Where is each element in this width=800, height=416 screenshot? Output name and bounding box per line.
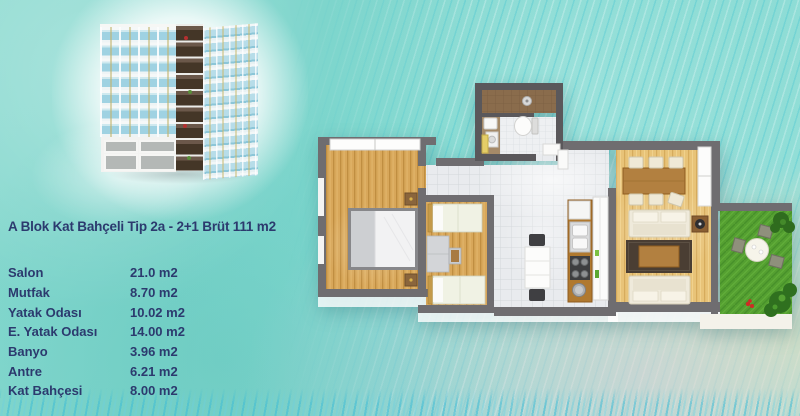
single-bed-1 — [428, 204, 482, 232]
room-area: 3.96 m2 — [130, 344, 178, 359]
balcony-plant-green2 — [187, 156, 191, 160]
master-side-window2 — [318, 236, 324, 264]
bathroom-cabinet-yellow — [482, 135, 488, 153]
room-label: Banyo — [8, 344, 130, 359]
hall-chair2 — [529, 289, 545, 301]
page: A Blok Kat Bahçeli Tip 2a - 2+1 Brüt 111… — [0, 0, 800, 416]
room-label: Antre — [8, 364, 130, 379]
room-area: 8.00 m2 — [130, 383, 178, 398]
balcony-flower-red2 — [183, 124, 187, 128]
room-label: Mutfak — [8, 285, 130, 300]
floorplan-svg — [312, 80, 800, 342]
room-area: 8.70 m2 — [130, 285, 178, 300]
master-side-window — [318, 178, 324, 216]
room-bathroom — [482, 90, 560, 161]
room-row-mutfak: Mutfak8.70 m2 — [8, 283, 258, 303]
garden-table — [746, 239, 769, 262]
storefront-window — [139, 140, 176, 153]
room-label: Salon — [8, 265, 130, 280]
building-ground-floor — [101, 137, 176, 172]
room-row-e-yatak-odasi: E. Yatak Odası14.00 m2 — [8, 322, 258, 342]
building-render — [100, 24, 258, 174]
room-row-kat-bahcesi: Kat Bahçesi8.00 m2 — [8, 381, 258, 401]
room-row-banyo: Banyo3.96 m2 — [8, 342, 258, 362]
bathroom-sink — [484, 118, 497, 129]
room-area-table: Salon21.0 m2 Mutfak8.70 m2 Yatak Odası10… — [8, 263, 258, 401]
storefront-window — [104, 154, 138, 171]
balcony-plant-green — [188, 90, 192, 94]
kitchen-cupboard — [569, 201, 590, 219]
room-kitchen — [568, 197, 608, 302]
building-front-facade — [100, 27, 176, 137]
sofa-bottom — [629, 276, 690, 304]
toilet-bowl — [515, 117, 532, 136]
storefront-window — [104, 140, 138, 153]
balcony-flower-red — [184, 36, 188, 40]
room-area: 14.00 m2 — [130, 324, 185, 339]
room-area: 21.0 m2 — [130, 265, 178, 280]
room-label: Kat Bahçesi — [8, 383, 130, 398]
room-label: Yatak Odası — [8, 305, 130, 320]
bathroom-door — [543, 144, 560, 155]
building-balcony-column — [176, 24, 203, 171]
room-row-antre: Antre6.21 m2 — [8, 361, 258, 381]
entry-door — [558, 150, 568, 169]
room-area: 10.02 m2 — [130, 305, 185, 320]
building-side-facade — [203, 23, 258, 180]
storefront-window — [139, 154, 176, 171]
room-row-salon: Salon21.0 m2 — [8, 263, 258, 283]
hall-chair — [529, 234, 545, 246]
hall-desk — [525, 247, 550, 288]
room-row-yatak-odasi: Yatak Odası10.02 m2 — [8, 302, 258, 322]
coffee-table — [639, 246, 679, 267]
room-label: E. Yatak Odası — [8, 324, 130, 339]
single-bed-2 — [428, 276, 485, 304]
sofa-top — [629, 210, 690, 237]
toilet-tank — [532, 118, 538, 134]
room-area: 6.21 m2 — [130, 364, 178, 379]
